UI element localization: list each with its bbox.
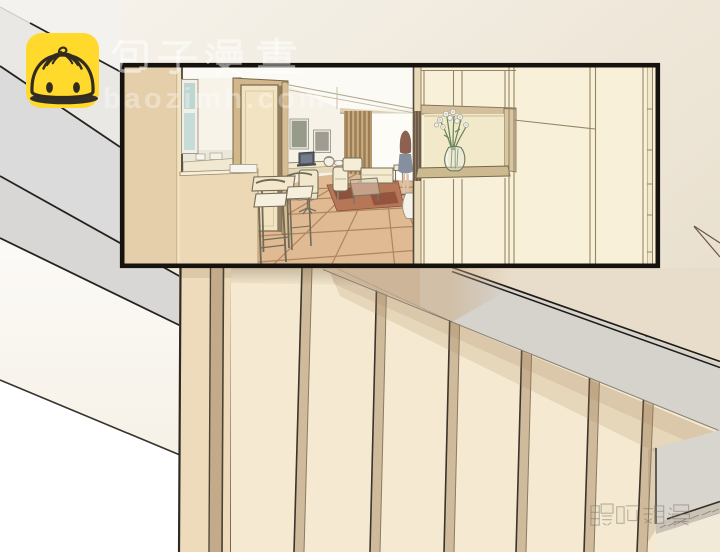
svg-text:baozimh.com: baozimh.com — [103, 83, 328, 115]
